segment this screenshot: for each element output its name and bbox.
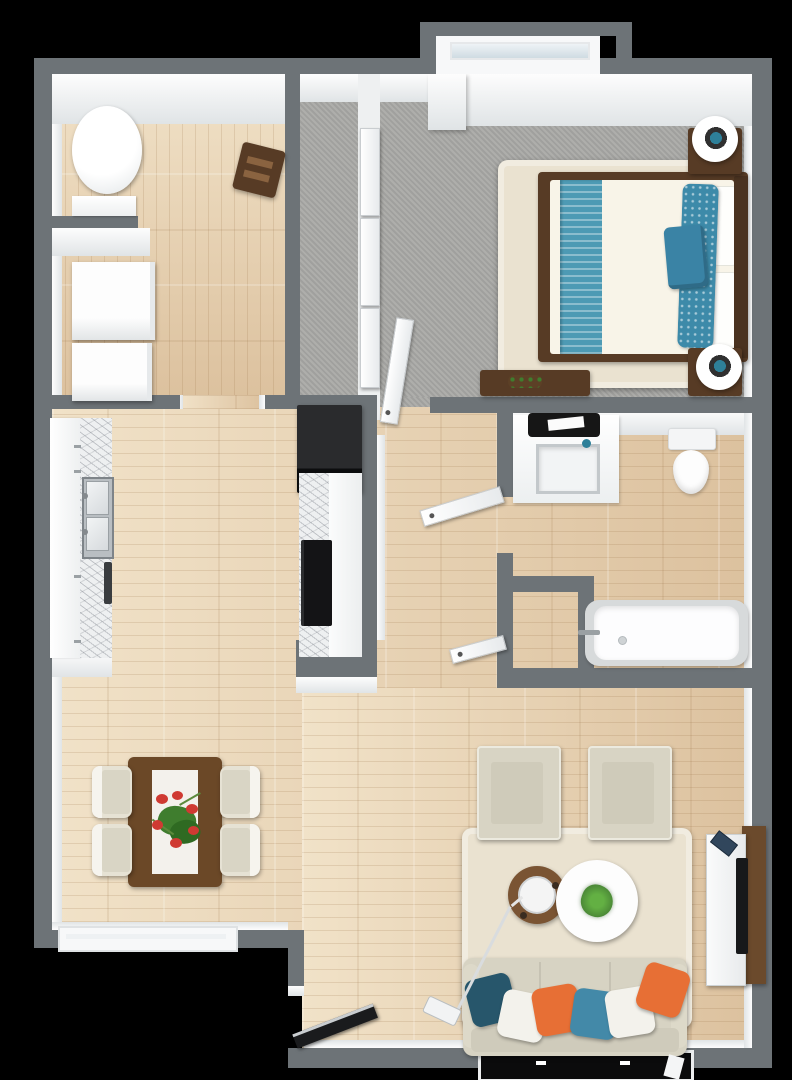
bathroom-mirror bbox=[528, 413, 600, 437]
apartment bbox=[0, 0, 792, 1080]
table-cup bbox=[520, 912, 527, 919]
sink-basin bbox=[86, 481, 109, 515]
armchair bbox=[588, 746, 672, 840]
kettle bbox=[518, 876, 556, 914]
flower-bloom bbox=[172, 791, 183, 800]
wall-face-dining-west bbox=[52, 676, 62, 930]
armchair-seat bbox=[602, 762, 654, 824]
armchair bbox=[477, 746, 561, 840]
floor-doorway-utility bbox=[180, 395, 265, 409]
chair-backrest bbox=[92, 824, 102, 876]
wall-entry-step bbox=[288, 930, 304, 994]
chair-seat bbox=[222, 828, 250, 872]
door-handle bbox=[429, 513, 435, 519]
kitchen-sink-unit bbox=[82, 477, 114, 559]
table-plant bbox=[576, 880, 617, 921]
wall-face-hall-midwall bbox=[377, 435, 385, 640]
bedroom-stub-wall bbox=[428, 74, 466, 130]
bed-headboard bbox=[734, 176, 748, 358]
bathtub-basin bbox=[594, 606, 739, 660]
living-window-tick bbox=[620, 1061, 630, 1065]
coffee-table-white bbox=[556, 860, 638, 942]
door-handle bbox=[385, 410, 391, 416]
closet-sliding-door-panel bbox=[360, 218, 380, 306]
stool-slat bbox=[246, 156, 273, 169]
sink-faucet bbox=[82, 493, 88, 499]
dryer bbox=[72, 343, 152, 401]
dining-chair bbox=[220, 766, 260, 818]
chair-seat bbox=[102, 770, 130, 814]
wall-face-utility-niche bbox=[46, 228, 150, 256]
wall-face-corridor-north bbox=[380, 74, 428, 102]
wall-bathroom-south bbox=[497, 668, 752, 688]
sink-basin bbox=[86, 517, 109, 551]
wall-kitchen-mid bbox=[362, 409, 377, 640]
sphere-lamp bbox=[692, 116, 738, 162]
utility-shelf bbox=[72, 196, 136, 216]
bay-window-wall-top bbox=[420, 22, 632, 36]
sink-faucet bbox=[82, 529, 88, 535]
flower-bloom bbox=[188, 826, 199, 835]
closet-sliding-door-panel bbox=[360, 128, 380, 216]
kitchen-cabinets-west bbox=[50, 418, 80, 658]
wall-utility-closet-divider bbox=[285, 74, 300, 395]
dining-chair bbox=[220, 824, 260, 876]
cabinet-handle bbox=[74, 470, 81, 473]
flower-bloom bbox=[170, 838, 182, 848]
dining-window-frame bbox=[58, 926, 238, 952]
wall-face-kitchen-cap-south bbox=[296, 677, 377, 693]
water-heater bbox=[72, 106, 142, 194]
flower-bloom bbox=[152, 820, 163, 830]
bathtub-drain bbox=[618, 636, 627, 645]
wall-north-left bbox=[34, 58, 436, 74]
chair-backrest bbox=[250, 824, 260, 876]
toilet-tank bbox=[668, 428, 716, 450]
vanity-faucet bbox=[582, 439, 591, 448]
bedroom-bay-window-glass bbox=[450, 42, 590, 60]
mirror-towel bbox=[548, 416, 585, 431]
wall-bathroom-west bbox=[497, 409, 513, 497]
flower-bloom bbox=[186, 804, 198, 814]
floor-closet-strip bbox=[298, 74, 358, 395]
dining-chair bbox=[92, 766, 132, 818]
wall-face-closet-north bbox=[298, 74, 358, 102]
chair-seat bbox=[102, 828, 130, 872]
stool-slat bbox=[243, 170, 270, 183]
sphere-lamp bbox=[696, 344, 742, 390]
dishwasher-front bbox=[104, 562, 112, 604]
cabinet-handle bbox=[74, 445, 81, 448]
bay-window-wall-left bbox=[420, 22, 436, 74]
wall-face-utility-west bbox=[52, 124, 62, 395]
washer bbox=[72, 262, 155, 340]
bedroom-dresser bbox=[480, 370, 590, 396]
bathtub-faucet bbox=[578, 630, 600, 635]
kitchen-counter-mid-front bbox=[329, 473, 362, 657]
flower-centerpiece bbox=[148, 790, 206, 852]
wall-utility-stub bbox=[34, 216, 138, 228]
door-handle bbox=[457, 651, 463, 657]
oven-cooktop bbox=[301, 540, 332, 626]
dining-window-glass bbox=[66, 934, 226, 939]
dining-chair bbox=[92, 824, 132, 876]
floorplan-canvas bbox=[0, 0, 792, 1080]
bay-window-wall-right bbox=[616, 22, 632, 74]
dresser-plant bbox=[508, 375, 542, 388]
entry-jamb-cap bbox=[288, 986, 304, 996]
chair-backrest bbox=[92, 766, 102, 818]
vanity-sink bbox=[536, 444, 600, 494]
cabinet-handle bbox=[74, 575, 81, 578]
flower-bloom bbox=[156, 794, 168, 804]
closet-sliding-door-panel bbox=[360, 308, 380, 388]
bed-pillow-teal-accent bbox=[663, 224, 708, 289]
armchair-seat bbox=[491, 762, 543, 824]
living-window-tick bbox=[536, 1061, 546, 1065]
wall-bathroom-west-jamb bbox=[497, 553, 513, 576]
wall-bedroom-south bbox=[430, 397, 752, 413]
chair-backrest bbox=[250, 766, 260, 818]
chair-seat bbox=[222, 770, 250, 814]
bed-runner-teal bbox=[560, 180, 602, 354]
cabinet-handle bbox=[74, 640, 81, 643]
tv-screen bbox=[736, 858, 748, 954]
